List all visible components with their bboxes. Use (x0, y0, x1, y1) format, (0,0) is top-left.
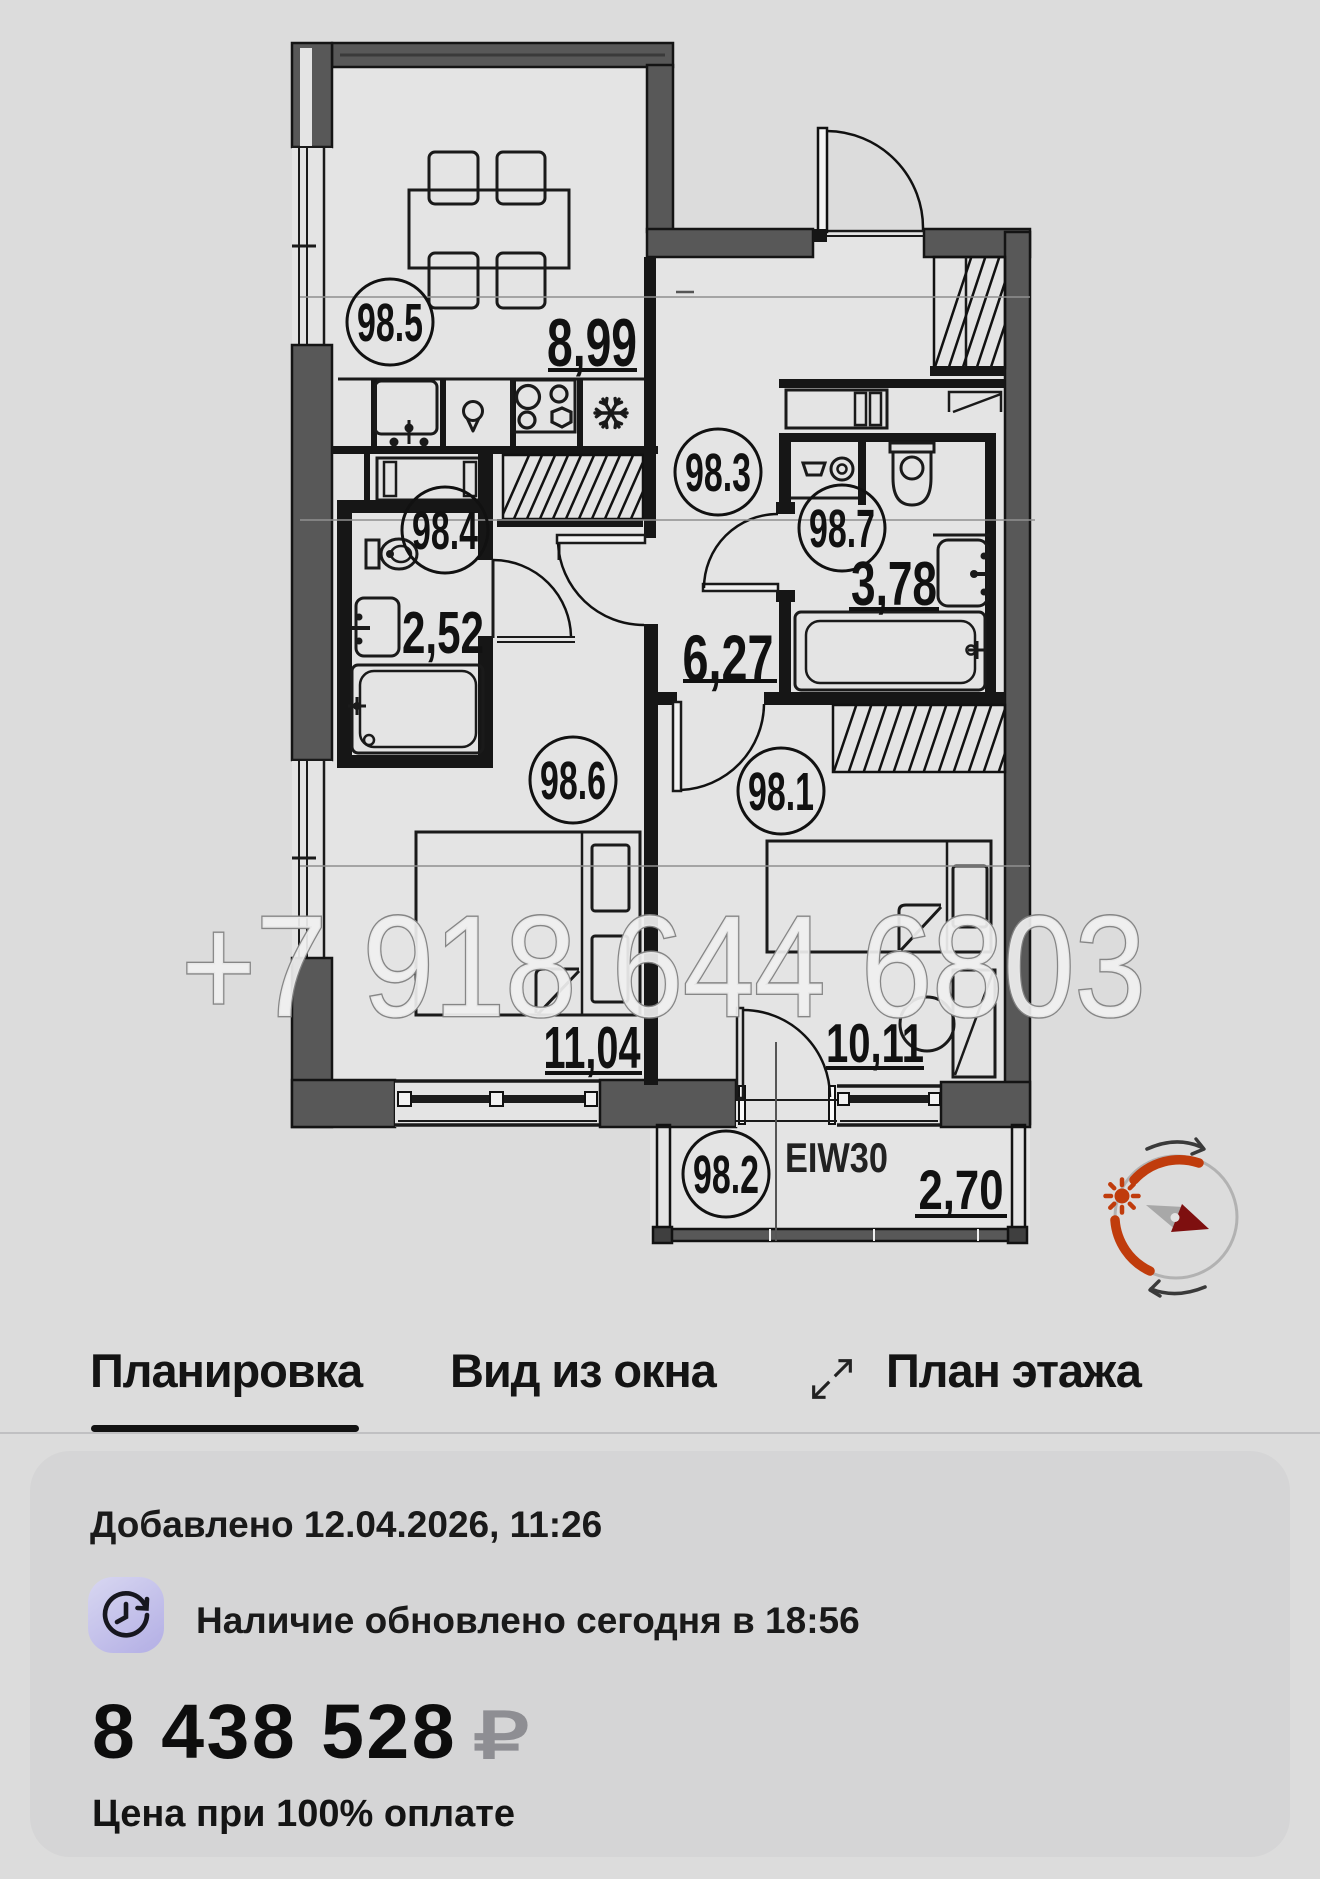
svg-text:98.6: 98.6 (540, 750, 606, 811)
svg-text:98.5: 98.5 (357, 292, 423, 353)
svg-text:98.3: 98.3 (685, 442, 751, 503)
svg-text:2,70: 2,70 (919, 1159, 1004, 1221)
svg-text:EIW30: EIW30 (785, 1135, 888, 1182)
svg-text:6,27: 6,27 (683, 622, 774, 696)
svg-text:2,52: 2,52 (402, 600, 484, 666)
svg-text:98.4: 98.4 (412, 500, 478, 561)
svg-text:98.1: 98.1 (748, 761, 814, 822)
svg-text:98.2: 98.2 (693, 1144, 759, 1205)
svg-text:+7 918 644 6803: +7 918 644 6803 (181, 886, 1146, 1047)
